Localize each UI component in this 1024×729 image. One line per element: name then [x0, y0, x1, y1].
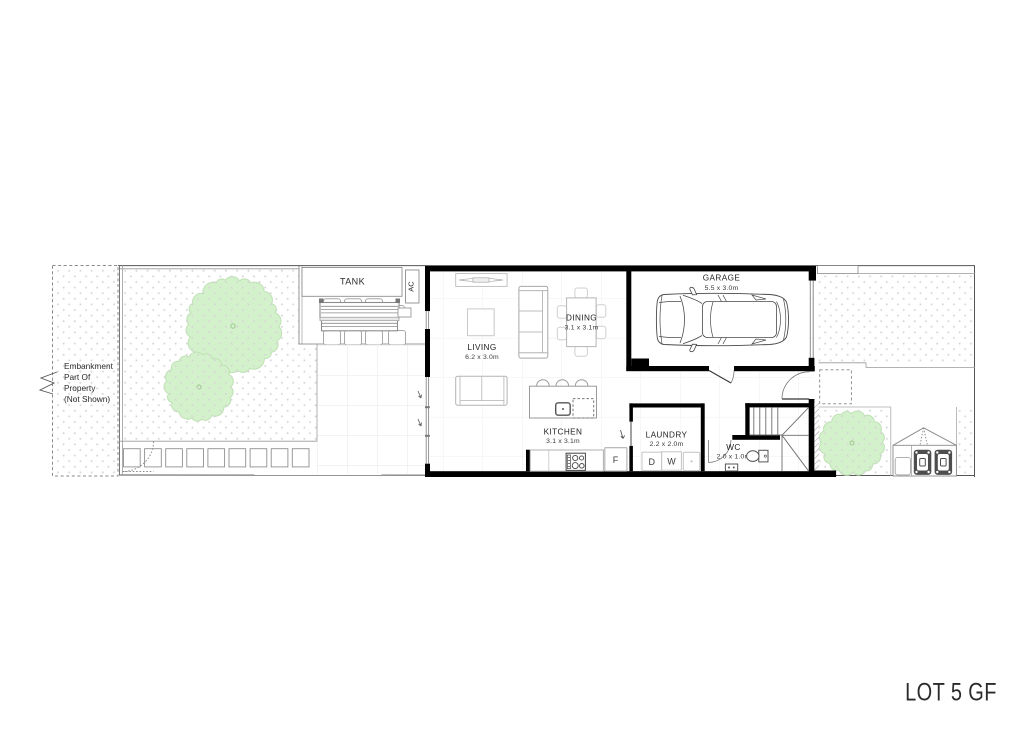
- svg-text:2.0 x 1.0m: 2.0 x 1.0m: [717, 454, 751, 461]
- svg-text:Embankment: Embankment: [64, 361, 114, 371]
- svg-text:KITCHEN: KITCHEN: [544, 428, 583, 437]
- svg-text:AC: AC: [407, 281, 416, 292]
- svg-text:2.2 x 2.0m: 2.2 x 2.0m: [650, 441, 684, 448]
- svg-text:Property: Property: [64, 383, 96, 393]
- svg-text:LIVING: LIVING: [467, 343, 496, 352]
- svg-text:GARAGE: GARAGE: [703, 274, 741, 283]
- svg-text:TANK: TANK: [340, 277, 365, 287]
- svg-text:(Not Shown): (Not Shown): [64, 394, 110, 404]
- svg-text:W: W: [667, 457, 676, 467]
- svg-text:5.5 x 3.0m: 5.5 x 3.0m: [705, 285, 739, 292]
- svg-text:6.2 x 3.0m: 6.2 x 3.0m: [465, 354, 499, 361]
- svg-text:LOT 5 GF: LOT 5 GF: [905, 678, 997, 706]
- svg-text:Part Of: Part Of: [64, 372, 91, 382]
- svg-text:3.1 x 3.1m: 3.1 x 3.1m: [546, 438, 580, 445]
- svg-text:3.1 x 3.1m: 3.1 x 3.1m: [565, 325, 599, 332]
- svg-text:LAUNDRY: LAUNDRY: [646, 431, 688, 440]
- svg-text:F: F: [613, 455, 619, 465]
- svg-text:D: D: [649, 457, 656, 467]
- svg-text:WC: WC: [726, 443, 740, 452]
- svg-text:DINING: DINING: [566, 314, 597, 323]
